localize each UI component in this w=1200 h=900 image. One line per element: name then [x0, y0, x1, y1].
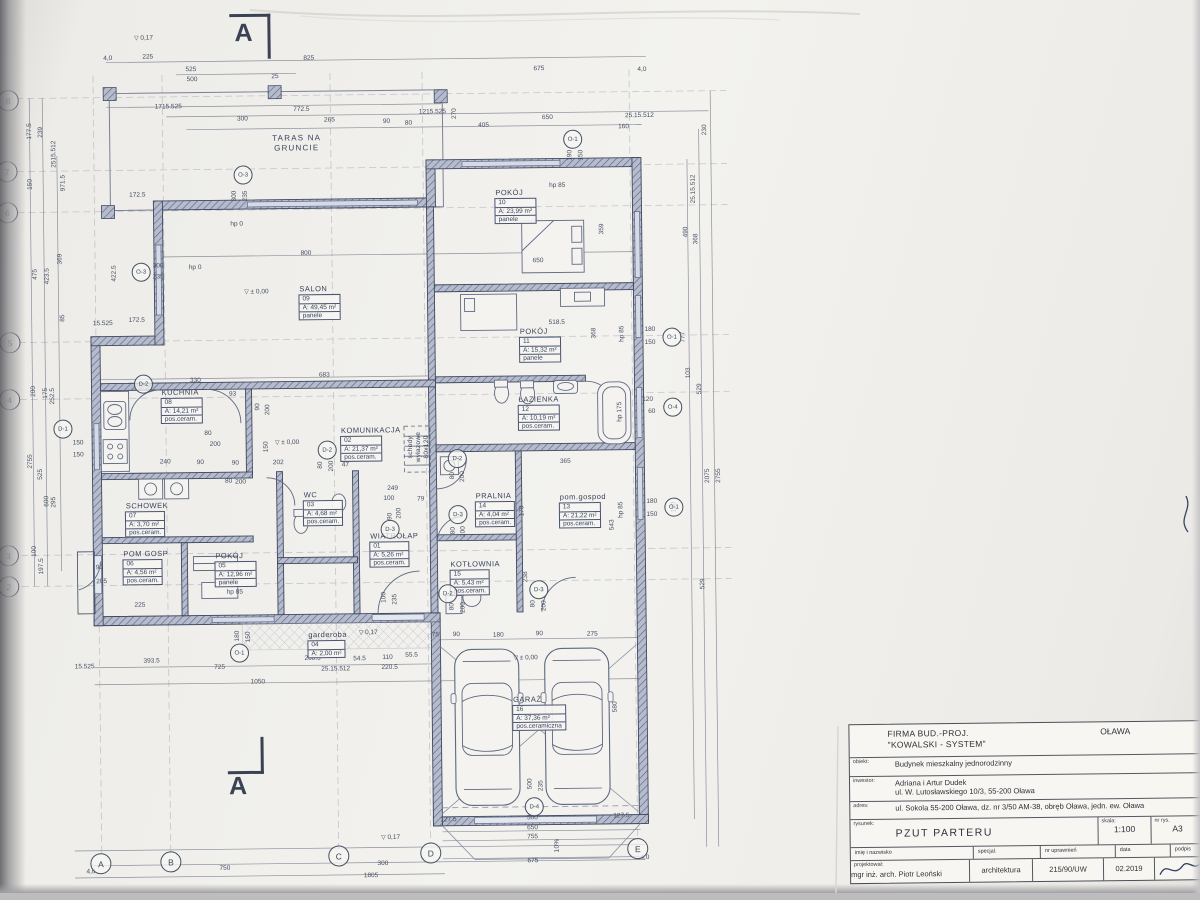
dimension-label: 300: [153, 262, 164, 269]
ref-marker-d-3: D-3: [529, 580, 548, 599]
ref-marker-d-2: D-2: [318, 440, 337, 459]
dimension-label: 90: [96, 564, 103, 571]
dimension-label: 650: [542, 114, 553, 121]
dimension-label: 750: [219, 865, 230, 872]
designer-date: 02.2019: [1103, 858, 1154, 881]
field-inwestor: Adriana i Artur Dudekul. W. Lutosławskie…: [895, 775, 1037, 801]
dimension-label: 275: [587, 631, 598, 638]
dimension-label: 160: [618, 123, 629, 130]
room-name: KOTŁOWNIA: [450, 560, 500, 569]
sheet-number: A3: [1151, 823, 1200, 834]
room-label-pokoj-05: POKÓJ05A: 12,96 m²panele: [214, 552, 256, 589]
dimension-label: hp 0: [189, 264, 202, 271]
scale-value: 1:100: [1099, 823, 1151, 834]
room-name: garderoba: [308, 631, 347, 640]
dimension-label: 772.5: [293, 106, 309, 113]
dimension-label: 235: [537, 780, 544, 791]
room-label-komunikacja: KOMUNIKACJA02A: 21,37 m²pos.ceram.: [340, 426, 401, 464]
designer-license: 215/90/UW: [1032, 858, 1103, 881]
room-area: A: 23,99 m²: [495, 206, 535, 215]
dimension-label: 15.525: [75, 663, 95, 670]
plan-note: schody wyłazowe 80x120: [407, 432, 432, 463]
plan-note: TARAS NA GRUNCIE: [272, 133, 321, 154]
dimension-label: 25.15.512: [690, 174, 697, 203]
level-marker: 0,17: [381, 834, 400, 841]
dimension-label: 239: [37, 127, 44, 138]
room-finish: pos.ceram.: [162, 414, 202, 423]
room-label-schowek: SCHOWEK07A: 3,70 m²pos.ceram.: [125, 502, 169, 539]
dimension-label: 1805: [364, 872, 379, 879]
grid-bubble-5: 5: [0, 332, 21, 353]
section-marker-top: A: [229, 14, 271, 59]
dimension-label: 150: [73, 439, 84, 446]
dimension-label: 55.5: [405, 652, 418, 659]
dimension-label: 60: [648, 408, 655, 415]
dimension-label: 525: [185, 66, 196, 73]
room-label-pom-gospod: pom.gospod13A: 21,22 m²pos.ceram.: [559, 493, 607, 530]
dimension-label: hp 85: [617, 502, 624, 518]
dimension-label: 369: [56, 254, 63, 265]
grid-bubble-d: D: [420, 842, 441, 863]
dimension-label: 518.5: [549, 319, 565, 326]
room-name: KOMUNIKACJA: [341, 426, 401, 435]
dimension-label: 265: [324, 116, 335, 123]
ref-marker-o-3: O-3: [233, 165, 252, 184]
plan-note: 10%: [554, 838, 562, 852]
room-finish: panele: [496, 215, 536, 224]
dimension-label: 150: [577, 150, 584, 161]
dimension-label: 80: [317, 462, 324, 469]
dimension-label: 300: [237, 115, 248, 122]
dimension-label: 200: [235, 479, 246, 486]
grid-bubble-2: 2: [0, 576, 19, 597]
ref-marker-o-1: O-1: [662, 328, 681, 347]
dimension-label: 405: [478, 122, 489, 129]
level-marker: ± 0,00: [275, 439, 299, 446]
ref-marker-d-3: D-3: [448, 505, 467, 524]
dimension-label: 235: [242, 191, 249, 202]
dimension-label: 100: [383, 495, 394, 502]
dimension-label: 90: [197, 459, 204, 466]
room-label-kuchnia: KUCHNIA08A: 14,21 m²pos.ceram.: [161, 389, 203, 426]
grid-bubble-b: B: [160, 851, 181, 872]
room-name: ŁAZIENKA: [519, 395, 560, 404]
dimension-label: 200: [395, 508, 402, 519]
field-label-adres: adres:: [850, 802, 895, 819]
dimension-label: 220.5: [381, 664, 397, 671]
dimension-label: 80: [450, 527, 457, 534]
signature-cell: [1154, 857, 1200, 880]
dimension-label: 240: [160, 458, 171, 465]
section-label: A: [229, 772, 247, 801]
dimension-label: 525: [37, 469, 44, 480]
room-name: WC: [304, 491, 343, 500]
room-finish: pos.ceram.: [126, 528, 164, 537]
dimension-label: 2755: [715, 468, 722, 483]
dimension-label: 200: [540, 600, 547, 611]
room-finish: pos.ceram.: [370, 558, 408, 567]
drawing-title: PZUT PARTERU: [895, 817, 1097, 846]
dimension-label: 422.5: [111, 265, 118, 281]
ref-marker-o-1: O-1: [230, 643, 249, 662]
dimension-label: 103: [685, 368, 692, 379]
dimension-label: 4,0: [103, 55, 112, 62]
title-block: FIRMA BUD.-PROJ."KOWALSKI - SYSTEM" OŁAW…: [848, 720, 1200, 884]
dimension-label: 79: [417, 495, 424, 502]
room-finish: panele: [216, 578, 256, 587]
dimension-label: 4,0: [637, 66, 646, 73]
dimension-label: 490: [682, 227, 689, 238]
section-marker-bottom: A: [227, 737, 263, 774]
dimension-label: 200: [460, 526, 467, 537]
room-name: POKÓJ: [495, 189, 536, 198]
room-name: GARAŻ: [513, 695, 566, 704]
ref-marker-d-2: D-2: [438, 584, 457, 603]
room-area: A: 21,22 m²: [560, 511, 600, 520]
dimension-label: 110: [382, 654, 392, 661]
room-finish: pos.ceram.: [304, 517, 342, 526]
dimension-label: 500: [187, 76, 198, 83]
room-label-pokoj-10: POKÓJ10A: 23,99 m²panele: [494, 189, 536, 226]
room-finish: panele: [520, 353, 560, 362]
dimension-label: 650: [533, 257, 544, 264]
room-area: A: 49,45 m²: [300, 303, 340, 312]
dimension-label: 100: [31, 546, 38, 557]
room-name: POKÓJ: [215, 552, 256, 561]
dimension-label: 200: [328, 461, 335, 472]
dimension-label: 15.525: [93, 320, 113, 327]
room-area: A: 10,19 m²: [519, 413, 559, 422]
dimension-label: 150: [645, 339, 656, 346]
dimension-label: 238: [522, 571, 529, 582]
dimension-label: 252.5: [49, 388, 56, 404]
room-name: POM GOSP: [123, 550, 168, 559]
dimension-label: 300: [231, 191, 238, 202]
ref-marker-d-2: D-2: [134, 375, 153, 394]
room-label-lazienka: ŁAZIENKA12A: 10,19 m²pos.ceram.: [518, 395, 560, 432]
dimension-label: 190: [566, 150, 573, 161]
dimension-label: 500: [526, 778, 533, 789]
grid-bubble-c: C: [328, 845, 349, 866]
dimension-label: 423.5: [44, 268, 51, 284]
dimension-label: 200: [459, 471, 466, 482]
room-label-pom-gosp: POM GOSP06A: 4,56 m²pos.ceram.: [122, 550, 168, 587]
dimension-label: 172.5: [129, 317, 145, 324]
field-label-inwestor: inwestor:: [850, 776, 895, 801]
room-name: pom.gospod: [560, 493, 606, 502]
dimension-label: 180: [646, 498, 657, 505]
dimension-label: 90: [536, 630, 543, 637]
ref-marker-d-1: D-1: [53, 419, 72, 438]
company-address: OŁAWA: [1092, 722, 1130, 754]
field-obiekt: Budynek mieszkalny jednorodzinny: [895, 756, 1014, 775]
drawing-content: WIATROŁAP01A: 5,26 m²pos.ceram.KOMUNIKAC…: [0, 0, 1200, 900]
dimension-label: 85: [59, 314, 66, 321]
dimension-label: 170: [518, 505, 525, 516]
level-marker: 0,17: [359, 629, 378, 636]
level-marker: 0,17: [134, 35, 153, 42]
dimension-label: 225: [142, 54, 153, 61]
grid-bubble-7: 7: [0, 161, 18, 182]
grid-bubble-6: 6: [0, 202, 18, 223]
dimension-label: 127.5: [613, 812, 629, 819]
dimension-label: 150: [646, 511, 657, 518]
dimension-label: hp 0: [230, 221, 243, 228]
dimension-label: 800: [301, 250, 312, 257]
dimension-label: 25.15.512: [321, 665, 350, 672]
dimension-label: 683: [319, 372, 330, 379]
ref-marker-o-1: O-1: [664, 498, 683, 517]
dimension-label: 755: [527, 833, 538, 840]
dimension-label: 200: [210, 441, 221, 448]
dimension-label: 120: [642, 396, 653, 403]
room-area: A: 15,32 m²: [520, 345, 560, 354]
dimension-label: 359: [598, 223, 605, 234]
dimension-label: 80: [529, 600, 536, 607]
dimension-label: 529: [699, 578, 706, 589]
dimension-label: 365: [560, 458, 571, 465]
level-marker: ± 0,00: [513, 654, 537, 661]
dimension-label: 25.15.512: [625, 112, 654, 119]
dimension-label: 205: [96, 578, 107, 585]
room-area: A: 12,96 m²: [216, 570, 256, 579]
room-finish: pos.ceram.: [124, 576, 162, 585]
dimension-label: 177.5: [26, 123, 33, 139]
field-label-rysunek: rysunek:: [850, 819, 895, 847]
dimension-label: 180: [234, 631, 241, 642]
room-area: A: 3,70 m²: [126, 520, 164, 529]
room-area: A: 21,37 m²: [341, 444, 381, 453]
dimension-label: 75: [432, 631, 439, 638]
section-label: A: [234, 19, 252, 48]
dimension-label: 580: [612, 701, 619, 712]
dimension-label: 150: [73, 451, 84, 458]
designer-specialty: architektura: [969, 859, 1032, 882]
dimension-label: 200: [30, 386, 37, 397]
room-name: POKÓJ: [520, 327, 561, 336]
dimension-label: 200: [264, 404, 271, 415]
dimension-label: hp 85: [227, 589, 243, 596]
dimension-label: 90: [383, 118, 390, 125]
room-finish: pos.ceram.: [476, 518, 514, 527]
scanned-drawing-sheet: WIATROŁAP01A: 5,26 m²pos.ceram.KOMUNIKAC…: [0, 0, 1200, 893]
room-name: KUCHNIA: [162, 389, 203, 398]
dimension-label: 235: [391, 594, 398, 605]
ref-marker-o-4: O-4: [663, 398, 682, 417]
dimension-label: 971.5: [60, 175, 67, 191]
dimension-label: 675: [533, 65, 544, 72]
designer-name: mgr inż. arch. Piotr Leoński: [851, 867, 944, 880]
dimension-label: 90: [232, 460, 239, 467]
room-label-garaz: GARAŻ16A: 37,36 m²pos.ceramiczna: [512, 695, 566, 732]
dimension-label: 1715.525: [155, 103, 182, 110]
dimension-label: 249: [387, 485, 398, 492]
room-label-garderoba: garderoba04A: 2,00 m²: [307, 631, 347, 660]
dimension-label: 230: [701, 124, 708, 135]
dimension-label: 650: [527, 824, 538, 831]
room-label-wc: WC03A: 4,68 m²pos.ceram.: [303, 491, 344, 528]
dimension-label: 2755: [27, 454, 34, 469]
dimension-label: 825: [303, 55, 314, 62]
grid-bubble-8: 8: [0, 90, 19, 111]
dimension-label: 90: [254, 403, 261, 410]
dimension-label: 150: [263, 441, 270, 452]
room-area: A: 4,04 m²: [476, 510, 514, 519]
field-label-obiekt: obiekt:: [850, 757, 895, 775]
dimension-label: hp 85: [618, 326, 625, 342]
room-finish: pos.ceram.: [341, 452, 381, 461]
room-name: PRALNIA: [476, 492, 515, 501]
dimension-label: 235: [153, 273, 164, 280]
dimension-label: 725: [214, 664, 225, 671]
dimension-label: 1215.525: [419, 108, 446, 115]
signature-mark: [1156, 857, 1200, 880]
dimension-label: 80: [448, 603, 455, 610]
room-area: A: 5,43 m²: [451, 578, 489, 587]
dimension-label: 150: [27, 179, 34, 190]
dimension-label: 54.5: [353, 655, 366, 662]
dimension-label: 25: [271, 73, 278, 80]
room-area: A: 5,26 m²: [370, 550, 408, 559]
dimension-label: hp 175: [616, 402, 623, 422]
dimension-label: 80: [204, 430, 211, 437]
grid-bubble-e: E: [627, 838, 648, 859]
room-area: A: 2,00 m²: [308, 649, 344, 658]
room-name: SCHOWEK: [126, 502, 168, 511]
dimension-label: 225: [134, 602, 145, 609]
dimension-label: 368: [590, 328, 597, 339]
dimension-label: 200: [459, 602, 466, 613]
room-area: A: 14,21 m²: [162, 406, 202, 415]
dimension-label: 180: [493, 632, 504, 639]
dimension-label: 675: [527, 857, 538, 864]
room-area: A: 4,68 m²: [304, 509, 342, 518]
dimension-label: 1050: [251, 678, 266, 685]
dimension-label: 150: [245, 632, 252, 643]
dimension-label: 180: [644, 326, 655, 333]
designer-row: projektował: mgr inż. arch. Piotr Leońsk…: [851, 856, 1200, 883]
dimension-label: 300: [377, 860, 388, 867]
dimension-label: 529: [696, 383, 703, 394]
dimension-label: 202: [273, 459, 284, 466]
ref-marker-o-3: O-3: [132, 263, 151, 282]
grid-bubble-3: 3: [0, 545, 19, 566]
dimension-label: 368: [692, 233, 699, 244]
ref-marker-d-4: D-4: [525, 797, 544, 816]
scale-cell: skala:1:100: [1097, 816, 1150, 844]
dimension-label: 80: [405, 120, 412, 127]
dimension-label: 295: [50, 497, 57, 508]
sheet-number-cell: nr rys.A3: [1150, 816, 1200, 844]
dimension-label: 475: [32, 269, 39, 280]
dimension-label: 393.5: [143, 658, 159, 665]
dimension-label: 2515.512: [50, 141, 57, 168]
room-name: SALON: [299, 285, 340, 294]
dimension-label: 100: [380, 592, 387, 603]
company-name: FIRMA BUD.-PROJ."KOWALSKI - SYSTEM": [849, 722, 1092, 757]
room-label-salon: SALON09A: 49,45 m²panele: [298, 285, 340, 322]
room-finish: pos.ceramiczna: [513, 721, 565, 730]
room-finish: pos.ceram.: [519, 421, 559, 430]
ref-marker-o-1: O-1: [563, 130, 582, 149]
dimension-label: 330: [190, 377, 201, 384]
level-marker: ± 0,00: [244, 288, 268, 295]
ref-marker-d-2: D-2: [448, 449, 467, 468]
dimension-label: 2075: [704, 469, 711, 484]
grid-bubble-a: A: [90, 853, 111, 874]
dimension-label: 93: [229, 391, 236, 398]
room-label-pokoj-11: POKÓJ11A: 15,32 m²panele: [519, 327, 561, 364]
dimension-label: 127.5: [440, 816, 456, 823]
ref-marker-d-3: D-3: [381, 520, 400, 539]
dimension-label: 90: [453, 631, 460, 638]
dimension-label: 197.5: [38, 558, 45, 574]
dimension-label: 270: [451, 108, 458, 119]
room-area: A: 4,56 m²: [124, 568, 162, 577]
room-finish: pos.ceram.: [560, 519, 600, 528]
dimension-label: 80: [449, 472, 456, 479]
dimension-label: 172.5: [129, 192, 145, 199]
dimension-label: 80: [225, 478, 232, 485]
grid-bubble-4: 4: [0, 389, 20, 410]
room-finish: panele: [300, 311, 340, 320]
room-label-pralnia: PRALNIA14A: 4,04 m²pos.ceram.: [475, 492, 516, 529]
dimension-label: hp 85: [549, 182, 565, 189]
dimension-label: 543: [609, 519, 616, 530]
